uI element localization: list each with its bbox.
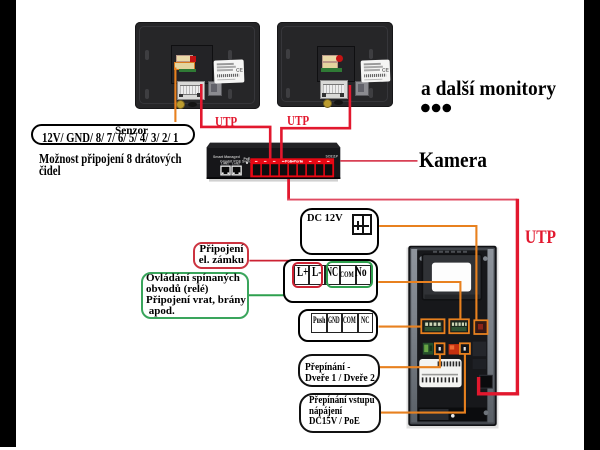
svg-text:SC811P: SC811P (326, 155, 339, 159)
svg-text:LAN1: LAN1 (221, 162, 229, 166)
svg-text:LAN2: LAN2 (232, 162, 240, 166)
svg-text:Smart Managed: Smart Managed (213, 155, 240, 159)
svg-text:PoE: PoE (244, 157, 251, 161)
